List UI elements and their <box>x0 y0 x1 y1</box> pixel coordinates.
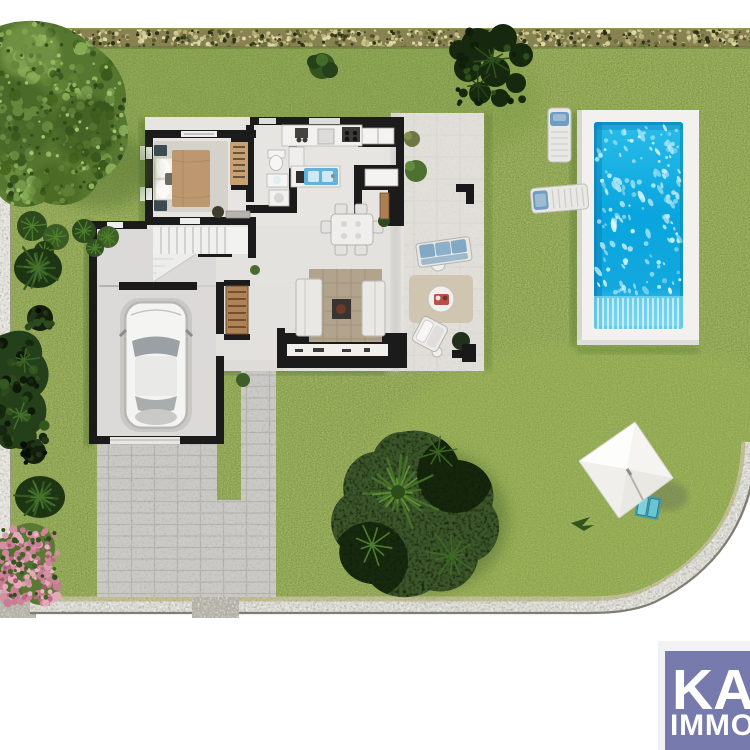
svg-text:IMMO: IMMO <box>670 709 750 742</box>
